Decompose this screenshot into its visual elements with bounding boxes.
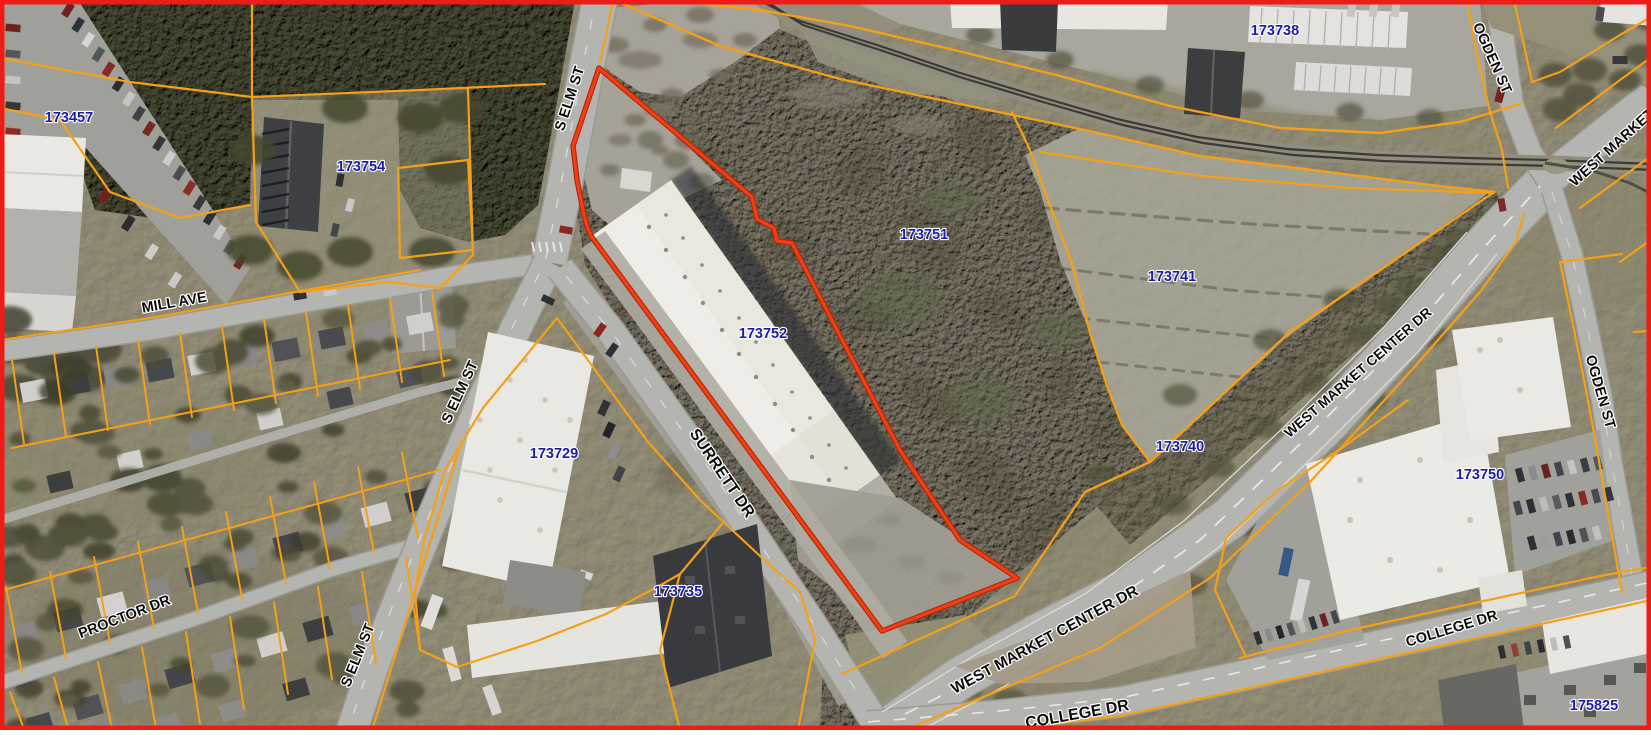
svg-text:173750: 173750 [1456, 467, 1504, 483]
svg-text:173754: 173754 [337, 159, 385, 175]
svg-text:173457: 173457 [45, 110, 93, 126]
svg-text:173729: 173729 [530, 446, 578, 462]
svg-text:173751: 173751 [900, 227, 948, 243]
svg-text:173738: 173738 [1251, 23, 1299, 39]
svg-text:175825: 175825 [1570, 698, 1618, 714]
svg-text:173741: 173741 [1148, 269, 1196, 285]
svg-text:173752: 173752 [739, 326, 787, 342]
svg-text:173740: 173740 [1156, 439, 1204, 455]
svg-text:173735: 173735 [654, 584, 702, 600]
